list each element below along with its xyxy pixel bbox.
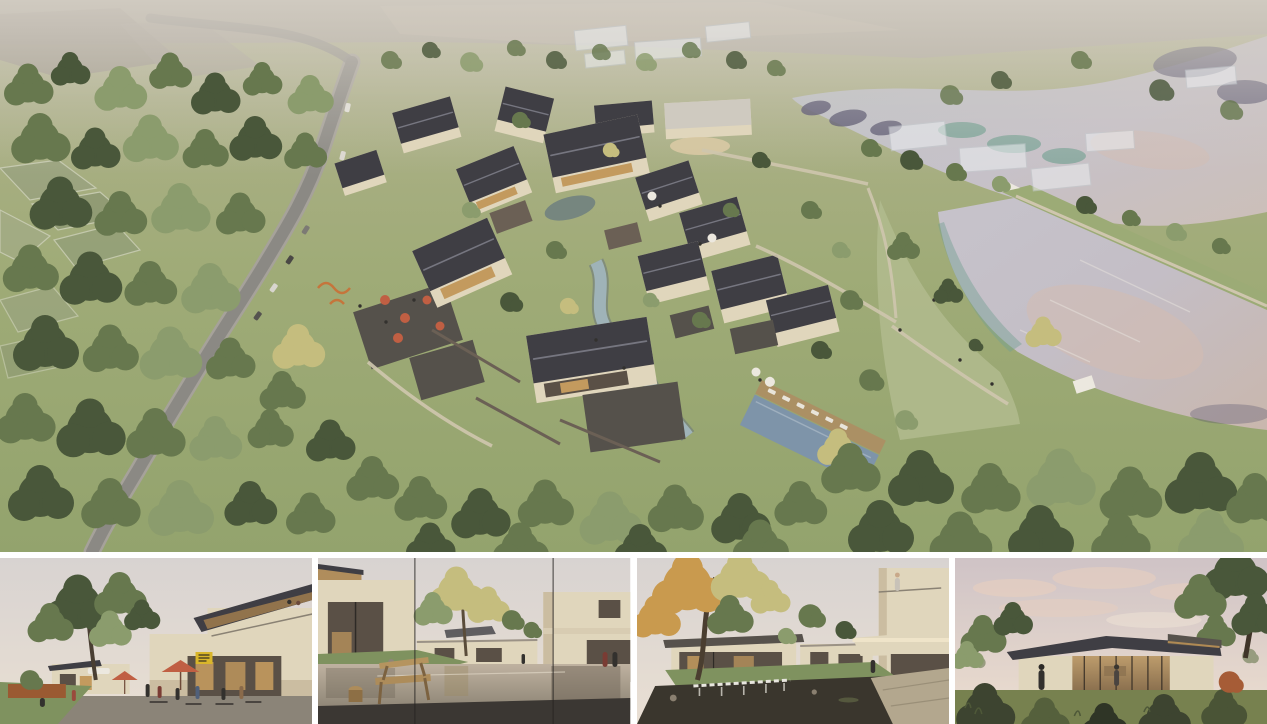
terrace-umbrella bbox=[752, 368, 761, 377]
vignette-row bbox=[0, 558, 1267, 724]
balcony-person bbox=[894, 573, 899, 591]
vignette-plaza-render bbox=[0, 558, 312, 724]
aerial-masterplan-render bbox=[0, 0, 1267, 552]
terrace-umbrella bbox=[648, 192, 657, 201]
terrace-umbrella bbox=[708, 234, 717, 243]
vignette-pool-court-render bbox=[318, 558, 630, 724]
vignette-garden-court-render bbox=[637, 558, 949, 724]
pond-person bbox=[870, 660, 875, 673]
vignette-pavilion-render bbox=[955, 558, 1267, 724]
rendering-presentation-board bbox=[0, 0, 1267, 724]
